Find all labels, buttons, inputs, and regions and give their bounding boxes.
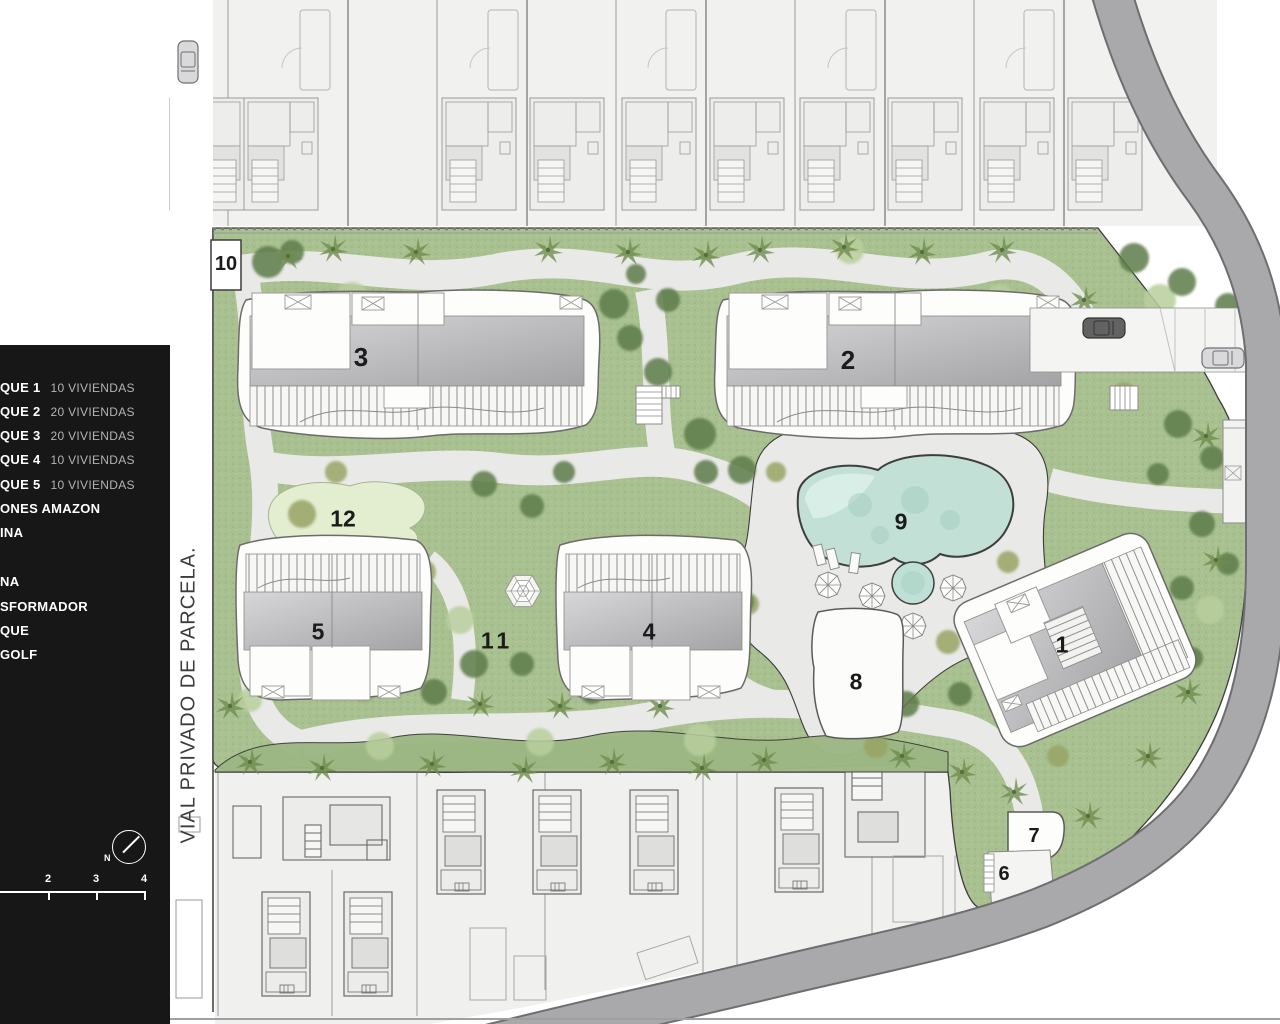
tree-icon (1164, 410, 1192, 438)
tree-icon (1147, 463, 1169, 485)
legend-row: ONES AMAZON (0, 500, 100, 518)
legend-name: QUE 1 (0, 380, 41, 395)
legend-row: SFORMADOR (0, 598, 88, 616)
road-label: VIAL PRIVADO DE PARCELA. (178, 546, 201, 843)
legend-name: SFORMADOR (0, 599, 88, 614)
tree-icon (520, 494, 544, 518)
tree-icon (766, 462, 786, 482)
tree-icon (446, 606, 474, 634)
tree-icon (599, 289, 629, 319)
tree-icon (684, 724, 716, 756)
legend-name: QUE 3 (0, 428, 41, 443)
legend-name: NA (0, 574, 19, 589)
tree-icon (936, 630, 960, 654)
legend-row: QUE 220 VIVIENDAS (0, 403, 135, 421)
label-box-10: 10 (215, 254, 237, 274)
tree-icon (1119, 243, 1149, 273)
neighbor-villas-top (170, 0, 1217, 226)
label-area-8: 8 (850, 671, 863, 694)
tree-icon (553, 461, 575, 483)
tree-icon (617, 325, 643, 351)
label-block-5: 5 (312, 621, 325, 644)
site-plan-canvas (0, 0, 1280, 1024)
car-top-left-icon (178, 41, 198, 83)
tree-icon (460, 650, 488, 678)
scale-tick (48, 891, 50, 900)
tree-icon (471, 471, 497, 497)
tree-icon (510, 652, 534, 676)
legend-name: GOLF (0, 647, 37, 662)
tree-icon (288, 500, 316, 528)
tree-icon (644, 358, 672, 386)
legend-name: QUE 5 (0, 477, 41, 492)
parasol-icon (859, 583, 885, 609)
legend-name: QUE 4 (0, 452, 41, 467)
legend-value: 20 VIVIENDAS (51, 429, 135, 443)
legend-row: QUE 510 VIVIENDAS (0, 476, 135, 494)
legend-value: 10 VIVIENDAS (51, 453, 135, 467)
tree-icon (1047, 745, 1069, 767)
label-area-12: 12 (330, 508, 356, 531)
scale-bar (0, 891, 146, 893)
parasol-icon (815, 572, 841, 598)
compass-north-label: N (104, 853, 111, 863)
building-2 (715, 290, 1077, 438)
tree-icon (1189, 511, 1215, 537)
label-area-6: 6 (998, 864, 1009, 884)
tree-icon (656, 288, 680, 312)
tree-icon (694, 460, 718, 484)
driveway (1030, 308, 1247, 372)
scale-number: 4 (141, 873, 147, 885)
tree-icon (1196, 596, 1224, 624)
legend-value: 10 VIVIENDAS (51, 478, 135, 492)
car-dark-icon (1083, 318, 1125, 338)
label-block-4: 4 (643, 621, 656, 644)
tree-icon (1200, 446, 1224, 470)
tree-icon (1170, 576, 1194, 600)
building-5 (236, 535, 432, 700)
label-block-2: 2 (841, 347, 855, 373)
legend-value: 20 VIVIENDAS (51, 405, 135, 419)
tree-icon (997, 551, 1019, 573)
tree-icon (626, 264, 646, 284)
legend-value: 10 VIVIENDAS (51, 381, 135, 395)
legend-name: ONES AMAZON (0, 501, 100, 516)
legend-row: QUE (0, 622, 29, 640)
tree-icon (1168, 268, 1196, 296)
legend-panel: QUE 110 VIVIENDAS QUE 220 VIVIENDAS QUE … (0, 345, 170, 1024)
tree-icon (728, 456, 756, 484)
legend-row: QUE 320 VIVIENDAS (0, 427, 135, 445)
label-pool-9: 9 (895, 511, 908, 534)
compass-needle (122, 836, 140, 854)
label-area-11: 11 (481, 630, 513, 653)
site-plan-page: 3 2 12 9 5 11 4 8 1 10 7 6 VIAL PRIVADO … (0, 0, 1280, 1024)
scale-number: 3 (93, 873, 99, 885)
legend-row: NA (0, 573, 19, 591)
label-block-3: 3 (354, 344, 368, 370)
scale-tick (144, 891, 146, 900)
legend-name: QUE (0, 623, 29, 638)
tree-icon (421, 679, 447, 705)
label-block-1: 1 (1056, 634, 1069, 657)
scale-number: 2 (45, 873, 51, 885)
building-3 (238, 290, 600, 438)
tree-icon (684, 418, 716, 450)
tree-icon (948, 682, 972, 706)
vial-strip (170, 0, 213, 1024)
legend-name: QUE 2 (0, 404, 41, 419)
car-light-icon (1202, 348, 1244, 368)
legend-name: INA (0, 525, 23, 540)
tree-icon (366, 732, 394, 760)
compass-icon (112, 830, 146, 864)
legend-row: GOLF (0, 646, 37, 664)
legend-row: QUE 110 VIVIENDAS (0, 379, 135, 397)
legend-row: QUE 410 VIVIENDAS (0, 451, 135, 469)
tree-icon (526, 728, 554, 756)
label-box-7: 7 (1028, 826, 1039, 846)
scale-tick (96, 891, 98, 900)
tree-icon (325, 461, 347, 483)
parasol-icon (940, 575, 966, 601)
legend-row: INA (0, 524, 23, 542)
